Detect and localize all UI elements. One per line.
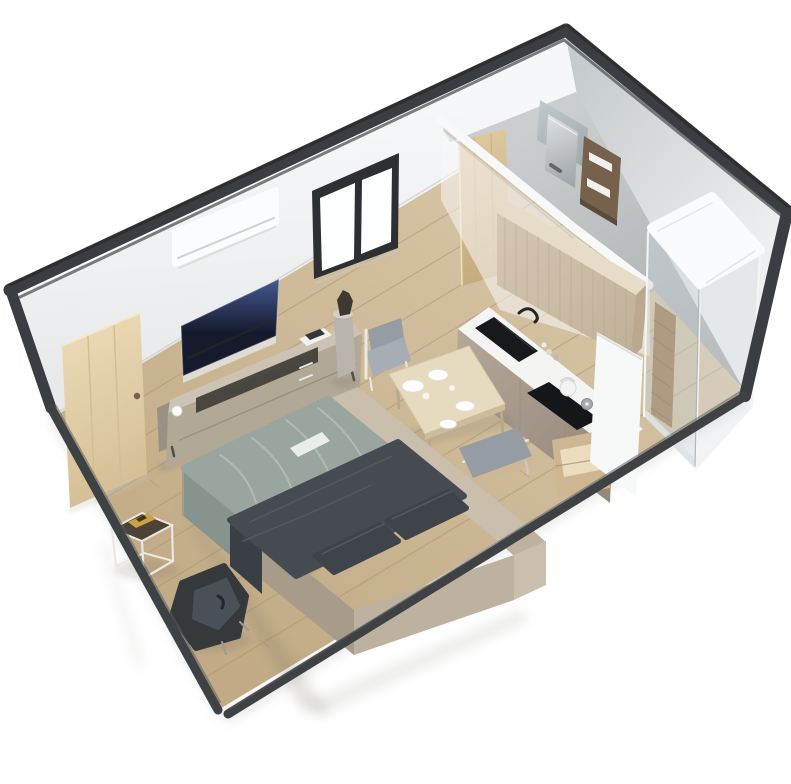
plate (402, 380, 424, 392)
soap-jar (554, 356, 559, 361)
interior-door (62, 313, 147, 510)
plate (456, 401, 475, 411)
cup (449, 385, 455, 391)
plate (428, 370, 448, 381)
door-handle (134, 393, 140, 399)
soap-jar (542, 343, 547, 348)
window-pane-left (320, 183, 355, 271)
cup (172, 406, 182, 416)
plate (440, 420, 457, 429)
cup (423, 393, 430, 400)
window-pane-right (361, 168, 392, 254)
kettle (560, 380, 576, 396)
isometric-floor-plan (0, 0, 791, 784)
floor-plan-canvas (0, 0, 791, 784)
soap-jar (546, 349, 552, 355)
